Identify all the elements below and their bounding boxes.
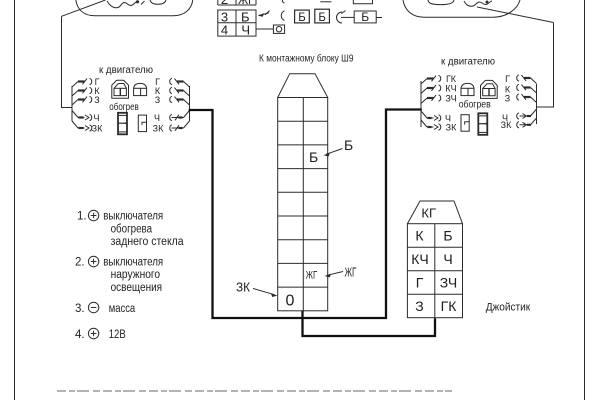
- svg-text:2: 2: [221, 0, 228, 7]
- svg-text:КЧ: КЧ: [411, 251, 429, 267]
- svg-text:Г: Г: [505, 74, 510, 84]
- svg-text:ЗК: ЗК: [501, 120, 512, 130]
- svg-text:ГК: ГК: [446, 74, 457, 84]
- svg-text:1.: 1.: [77, 211, 87, 223]
- svg-text:обогрев: обогрев: [459, 99, 491, 111]
- svg-text:ЗК: ЗК: [92, 124, 103, 134]
- svg-text:ЗК: ЗК: [236, 279, 250, 294]
- svg-text:Ч: Ч: [443, 251, 452, 267]
- svg-text:4: 4: [221, 22, 228, 37]
- svg-text:к двигателю: к двигателю: [441, 57, 495, 68]
- svg-text:выключателя: выключателя: [103, 257, 163, 269]
- svg-text:ЖГ: ЖГ: [306, 269, 318, 281]
- svg-text:3.: 3.: [75, 303, 85, 315]
- svg-text:ЖГ: ЖГ: [238, 0, 254, 7]
- svg-text:наружного: наружного: [111, 269, 161, 281]
- svg-text:обогрев: обогрев: [109, 101, 139, 113]
- svg-text:Б: Б: [443, 228, 452, 244]
- svg-text:ЗЧ: ЗЧ: [440, 275, 457, 291]
- svg-text:ЗК: ЗК: [153, 124, 164, 134]
- svg-text:КЧ: КЧ: [445, 84, 456, 94]
- svg-text:обогрева: обогрева: [111, 224, 153, 236]
- svg-text:12В: 12В: [109, 329, 126, 341]
- svg-text:З: З: [94, 95, 99, 105]
- svg-text:заднего стекла: заднего стекла: [111, 236, 185, 248]
- svg-text:Ч: Ч: [241, 23, 250, 38]
- svg-text:Б: Б: [318, 12, 326, 24]
- svg-text:2.: 2.: [75, 257, 85, 269]
- svg-text:Ч: Ч: [94, 113, 100, 123]
- svg-text:КГ: КГ: [421, 206, 436, 221]
- svg-text:освещения: освещения: [111, 282, 163, 294]
- svg-text:к двигателю: к двигателю: [99, 65, 153, 76]
- svg-text:Ч: Ч: [154, 113, 160, 123]
- svg-text:ЗЧ: ЗЧ: [445, 94, 456, 104]
- svg-text:выключателя: выключателя: [103, 211, 163, 223]
- svg-text:Б: Б: [309, 149, 318, 165]
- svg-text:Б: Б: [361, 10, 369, 24]
- svg-text:Б: Б: [298, 12, 306, 24]
- svg-text:масса: масса: [109, 303, 136, 315]
- svg-text:Б: Б: [344, 137, 353, 153]
- svg-text:4.: 4.: [75, 329, 85, 341]
- svg-text:З: З: [505, 94, 510, 104]
- svg-text:ГК: ГК: [441, 298, 458, 314]
- svg-text:З: З: [155, 95, 160, 105]
- svg-text:К монтажному блоку Ш9: К монтажному блоку Ш9: [259, 53, 354, 65]
- svg-text:ЗК: ЗК: [446, 123, 457, 133]
- svg-text:ЖГ: ЖГ: [345, 265, 357, 280]
- svg-text:З: З: [415, 298, 423, 314]
- svg-text:Джойстик: Джойстик: [486, 302, 531, 314]
- svg-text:0: 0: [286, 293, 295, 310]
- svg-text:Г: Г: [416, 275, 424, 291]
- svg-text:К: К: [415, 228, 424, 244]
